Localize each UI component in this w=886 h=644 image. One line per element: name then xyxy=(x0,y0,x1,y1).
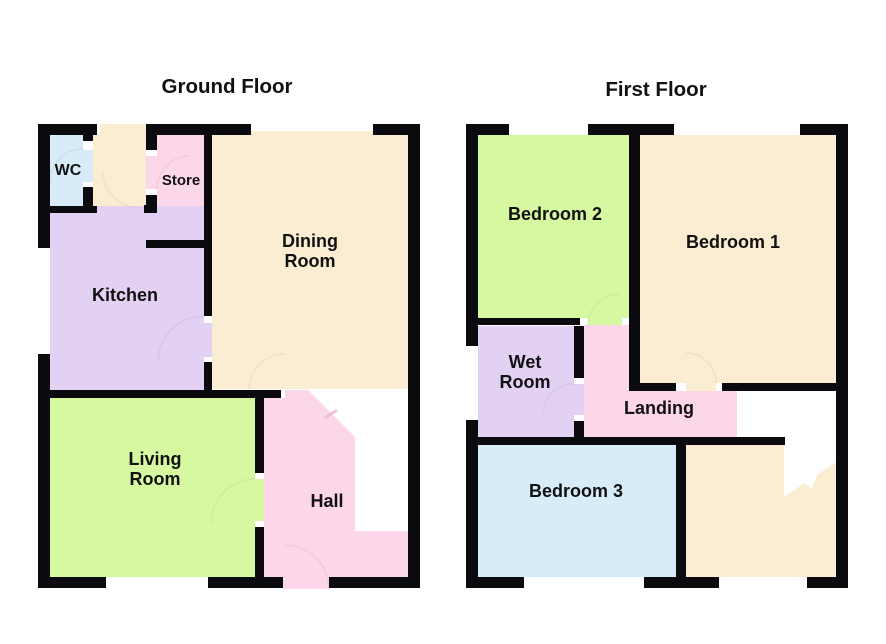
svg-text:Bedroom 2: Bedroom 2 xyxy=(508,204,602,224)
svg-text:WC: WC xyxy=(55,162,82,179)
svg-text:Wet: Wet xyxy=(509,352,542,372)
svg-text:Store: Store xyxy=(162,172,200,189)
svg-text:Living: Living xyxy=(129,449,182,469)
svg-text:Kitchen: Kitchen xyxy=(92,285,158,305)
svg-text:Ground Floor: Ground Floor xyxy=(162,75,293,98)
svg-text:Room: Room xyxy=(500,372,551,392)
svg-text:Dining: Dining xyxy=(282,231,338,251)
svg-text:Room: Room xyxy=(285,251,336,271)
svg-text:Hall: Hall xyxy=(310,491,343,511)
svg-text:Landing: Landing xyxy=(624,398,694,418)
svg-text:First Floor: First Floor xyxy=(605,78,706,101)
svg-text:Bedroom 3: Bedroom 3 xyxy=(529,481,623,501)
svg-text:Bedroom 1: Bedroom 1 xyxy=(686,232,780,252)
svg-text:Room: Room xyxy=(130,469,181,489)
